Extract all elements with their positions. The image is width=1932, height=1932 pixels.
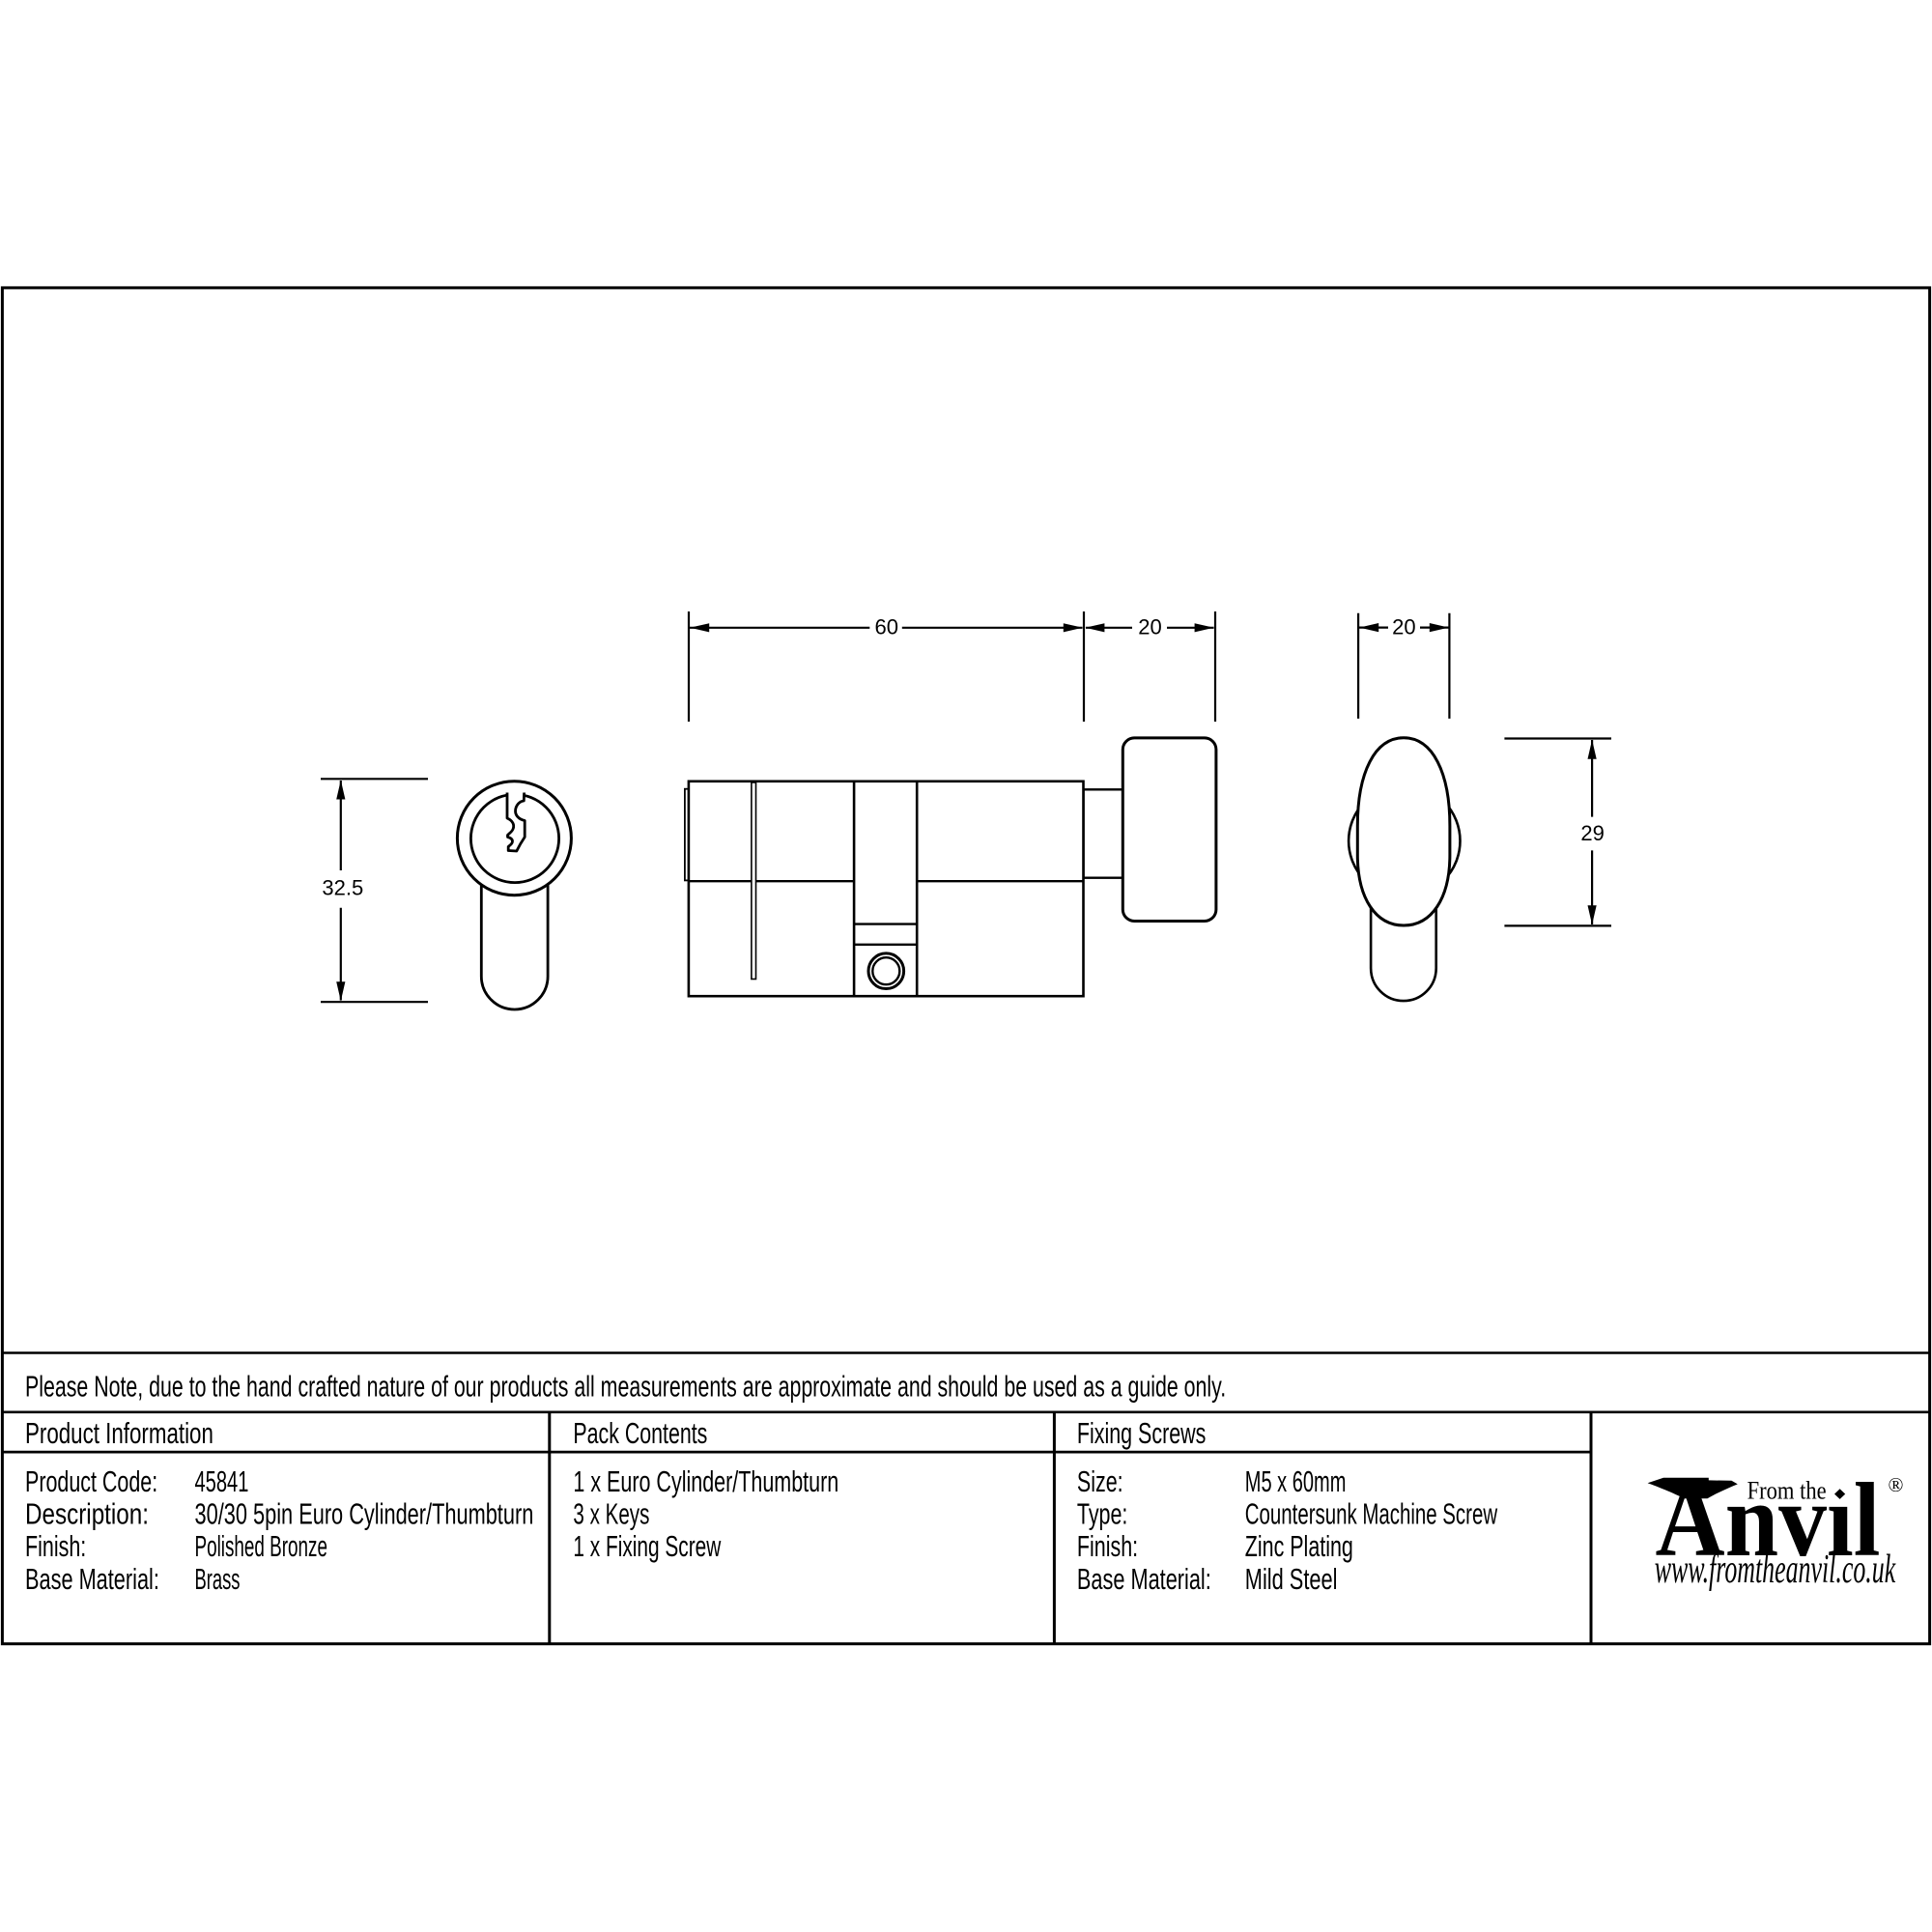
svg-text:Product Code:: Product Code: — [25, 1464, 157, 1498]
svg-text:Countersunk Machine Screw: Countersunk Machine Screw — [1245, 1497, 1497, 1531]
svg-text:Pack Contents: Pack Contents — [573, 1416, 707, 1450]
svg-text:1 x Euro Cylinder/Thumbturn: 1 x Euro Cylinder/Thumbturn — [573, 1464, 838, 1498]
svg-text:20: 20 — [1138, 614, 1161, 639]
svg-text:Finish:: Finish: — [1077, 1529, 1138, 1563]
svg-text:M5 x 60mm: M5 x 60mm — [1245, 1466, 1347, 1498]
svg-text:Mild Steel: Mild Steel — [1245, 1562, 1338, 1596]
svg-text:®: ® — [1889, 1473, 1904, 1496]
svg-text:45841: 45841 — [195, 1466, 249, 1498]
svg-text:20: 20 — [1392, 614, 1415, 639]
svg-text:60: 60 — [875, 614, 898, 639]
svg-text:3 x Keys: 3 x Keys — [573, 1497, 649, 1531]
svg-text:Zinc Plating: Zinc Plating — [1245, 1529, 1353, 1563]
svg-text:32.5: 32.5 — [322, 876, 363, 900]
svg-text:Base Material:: Base Material: — [1077, 1562, 1211, 1596]
svg-text:Fixing Screws: Fixing Screws — [1077, 1416, 1206, 1450]
svg-text:From the: From the — [1747, 1477, 1827, 1505]
svg-text:Polished Bronze: Polished Bronze — [195, 1531, 327, 1564]
svg-text:Description:: Description: — [25, 1497, 149, 1530]
svg-text:30/30 5pin Euro Cylinder/Thumb: 30/30 5pin Euro Cylinder/Thumbturn — [195, 1497, 534, 1531]
svg-text:Finish:: Finish: — [25, 1529, 86, 1563]
svg-text:29: 29 — [1580, 821, 1604, 845]
svg-text:Type:: Type: — [1077, 1497, 1128, 1531]
svg-text:Brass: Brass — [195, 1563, 241, 1596]
svg-text:Base Material:: Base Material: — [25, 1562, 159, 1596]
svg-text:Please Note, due to the hand c: Please Note, due to the hand crafted nat… — [25, 1370, 1226, 1404]
svg-text:Size:: Size: — [1077, 1464, 1123, 1498]
svg-text:1 x Fixing Screw: 1 x Fixing Screw — [573, 1529, 721, 1563]
svg-text:Product Information: Product Information — [25, 1416, 213, 1449]
svg-text:www.fromtheanvil.co.uk: www.fromtheanvil.co.uk — [1655, 1547, 1896, 1592]
